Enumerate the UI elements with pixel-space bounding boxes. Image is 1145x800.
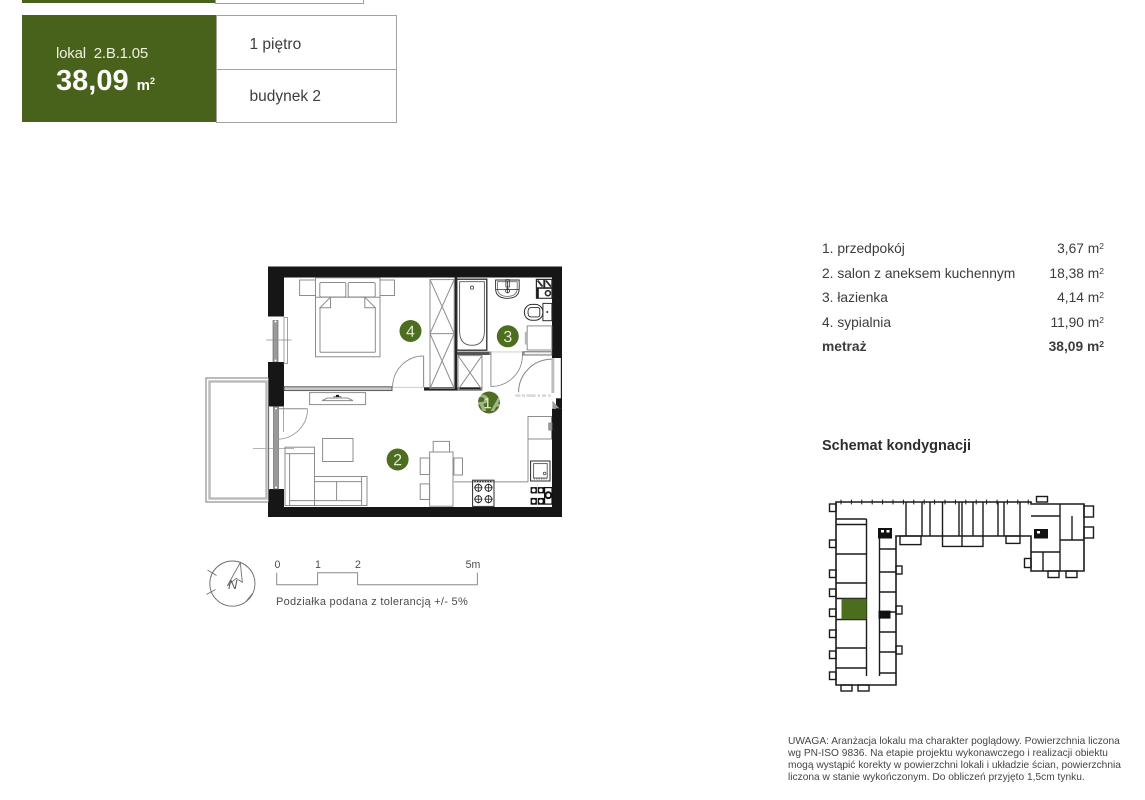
svg-text:R: R [471,390,489,417]
svg-text:N: N [228,577,238,592]
svg-text:5m: 5m [466,559,481,571]
svg-text:0: 0 [275,559,281,571]
svg-text:2: 2 [355,559,361,571]
svg-text:A: A [490,390,509,417]
svg-text:1: 1 [315,559,321,571]
